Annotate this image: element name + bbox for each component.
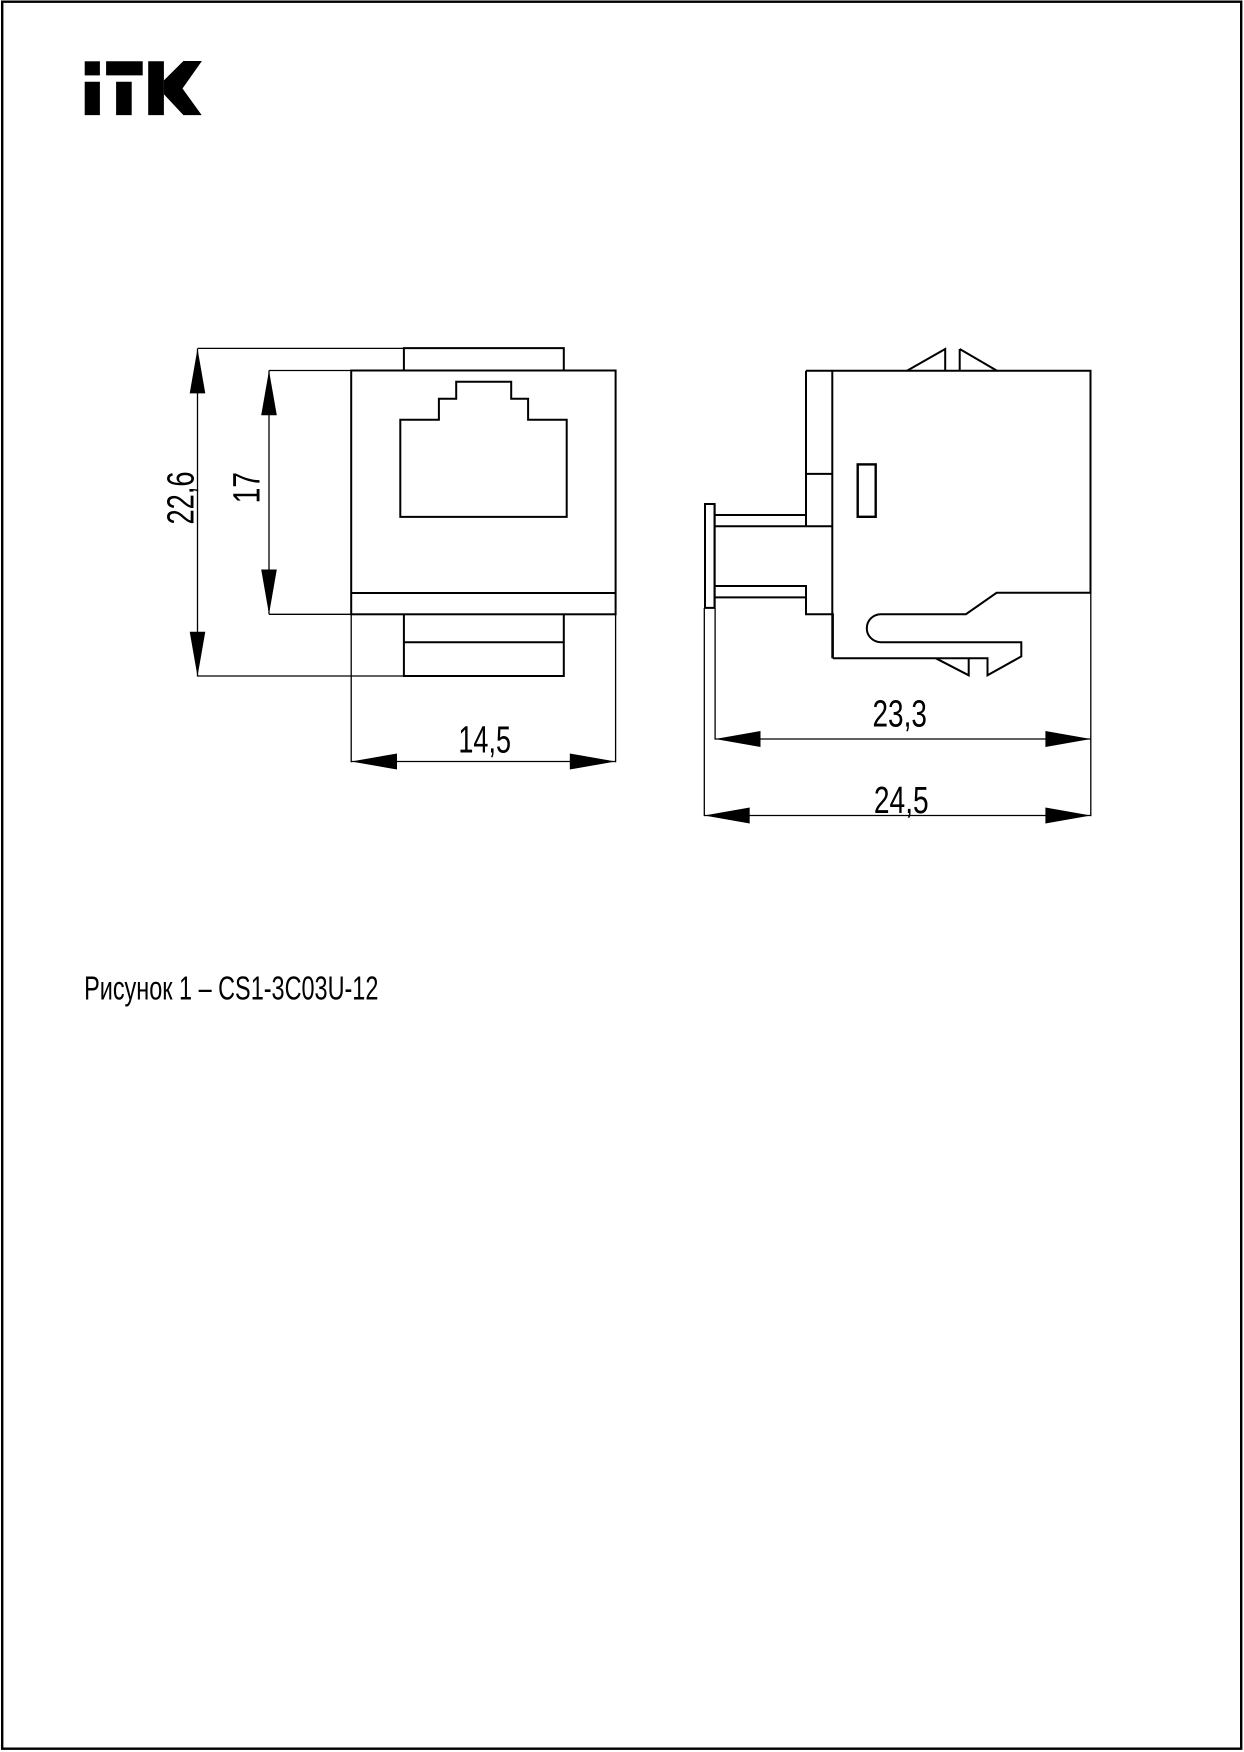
svg-text:Рисунок 1 – CS1-3C03U-12: Рисунок 1 – CS1-3C03U-12 xyxy=(84,971,378,1008)
svg-text:24,5: 24,5 xyxy=(874,780,929,822)
svg-text:23,3: 23,3 xyxy=(873,693,927,735)
svg-text:17: 17 xyxy=(227,472,269,503)
svg-text:22,6: 22,6 xyxy=(160,471,202,524)
svg-text:14,5: 14,5 xyxy=(458,719,511,761)
